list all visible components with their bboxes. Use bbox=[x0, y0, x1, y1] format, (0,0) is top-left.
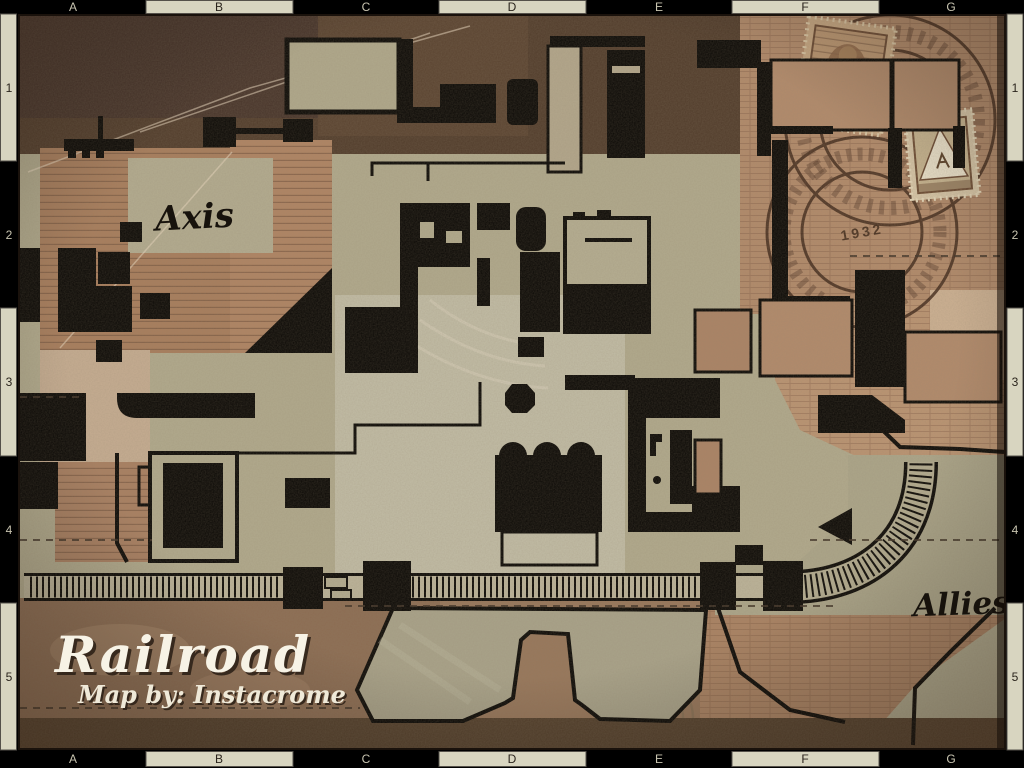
grid-row-label: 4 bbox=[6, 523, 13, 537]
grid-column-label: A bbox=[69, 752, 77, 766]
grid-row-label: 1 bbox=[1012, 81, 1019, 95]
grid-column-label: C bbox=[362, 752, 371, 766]
grid-row-label: 5 bbox=[6, 670, 13, 684]
grid-column-label: B bbox=[215, 0, 223, 14]
grid-column-label: G bbox=[946, 0, 955, 14]
map-area: 1932 bbox=[18, 14, 1010, 750]
grid-row-label: 3 bbox=[6, 375, 13, 389]
map-credit-text: Map by: Instacrome bbox=[77, 680, 346, 709]
grid-column-label: G bbox=[946, 752, 955, 766]
grid-row-label: 2 bbox=[1012, 228, 1019, 242]
grid-column-label: B bbox=[215, 752, 223, 766]
grid-ruler-left: 1 2 3 4 5 bbox=[0, 14, 18, 750]
grid-column-label: F bbox=[801, 0, 808, 14]
grid-column-label: E bbox=[655, 0, 663, 14]
grid-ruler-top: A B C D E F G bbox=[0, 0, 1024, 14]
axis-spawn-label: Axis bbox=[151, 196, 235, 240]
railroad-map: 1932 bbox=[0, 0, 1024, 768]
grid-column-label: C bbox=[362, 0, 371, 14]
grid-row-label: 1 bbox=[6, 81, 13, 95]
map-title: Railroad Railroad Map by: Instacrome Map… bbox=[53, 625, 348, 711]
grid-column-label: D bbox=[508, 752, 517, 766]
grid-column-label: E bbox=[655, 752, 663, 766]
grid-column-label: D bbox=[508, 0, 517, 14]
map-title-text: Railroad bbox=[53, 625, 311, 684]
railroad-map-screen: 1932 bbox=[0, 0, 1024, 768]
grid-row-label: 2 bbox=[6, 228, 13, 242]
grid-ruler-bottom: A B C D E F G bbox=[0, 750, 1024, 768]
grid-row-label: 5 bbox=[1012, 670, 1019, 684]
grid-column-label: A bbox=[69, 0, 77, 14]
grid-row-label: 4 bbox=[1012, 523, 1019, 537]
grid-ruler-right: 1 2 3 4 5 bbox=[1006, 14, 1024, 750]
grid-column-label: F bbox=[801, 752, 808, 766]
grid-row-label: 3 bbox=[1012, 375, 1019, 389]
allies-spawn-label: Allies bbox=[909, 585, 1010, 624]
